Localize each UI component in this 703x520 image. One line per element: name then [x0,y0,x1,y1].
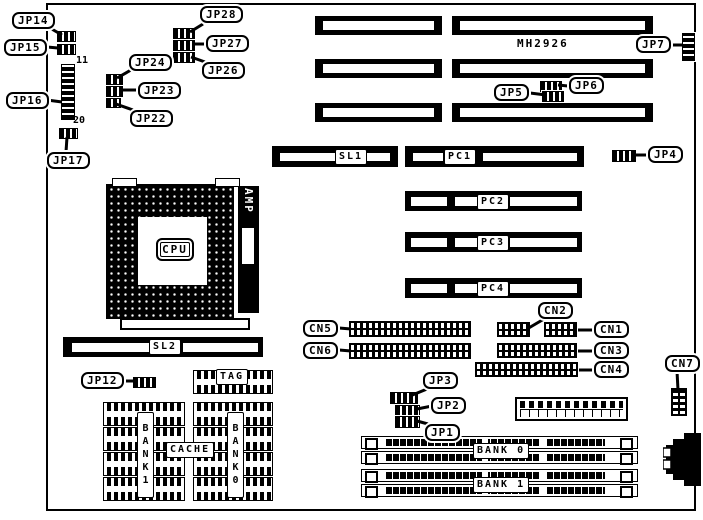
slot-keyway [460,108,645,117]
isa-slot [452,16,653,35]
slot-label-sl1: SL1 [335,149,367,165]
slot-keyway [72,343,150,352]
isa-slot [315,103,442,122]
slot-label-sl2: SL2 [149,339,181,355]
slot-keyway [483,153,577,161]
isa-slot [452,103,653,122]
simm-notch [540,472,546,479]
cache-bank1-label: BANK1 [137,412,154,498]
cpu-label: CPU [156,238,194,261]
slot-keyway [323,64,434,73]
label-cn1: CN1 [594,321,629,338]
header-cn6 [349,343,471,359]
slot-keyway [460,21,645,30]
slot-keyway [411,284,447,293]
header-cn1 [544,322,577,337]
slot-keyway [510,284,577,293]
header-cn7 [671,388,687,416]
jumper-jp1 [395,416,420,428]
slot-keyway [280,153,342,161]
jumper-jp23 [106,86,123,97]
simm-clip [365,438,378,450]
label-jp14: JP14 [12,12,55,29]
chipset-text: MH2926 [517,37,569,50]
slot-keyway [510,238,577,247]
label-jp15: JP15 [4,39,47,56]
slot-keyway [183,343,258,352]
memory-bank0-label: BANK 0 [473,443,529,459]
simm-clip [620,453,633,465]
slot-label-pc1: PC1 [444,149,476,165]
slot-keyway [413,153,443,161]
jumper-jp4 [612,150,636,162]
jumper-jp26 [173,52,195,63]
jumper-jp17 [59,128,78,139]
slot-label-pc4: PC4 [477,281,509,297]
jumper-jp14 [57,31,76,42]
power-connector [515,397,628,421]
jumper-jp24 [106,74,123,85]
label-jp3: JP3 [423,372,458,389]
header-cn3 [497,343,577,358]
simm-clip [620,471,633,483]
label-jp24: JP24 [129,54,172,71]
simm-clip [365,486,378,498]
label-jp23: JP23 [138,82,181,99]
slot-keyway [455,197,477,206]
pin-number-11: 11 [76,55,88,66]
simm-notch [540,487,546,494]
label-cn3: CN3 [594,342,629,359]
slot-keyway [411,238,447,247]
slot-keyway [323,108,434,117]
jumper-jp22 [106,98,121,108]
label-jp16: JP16 [6,92,49,109]
label-jp1: JP1 [425,424,460,441]
simm-clip [365,453,378,465]
socket-tab [215,178,240,187]
label-jp2: JP2 [431,397,466,414]
slot-keyway [323,21,434,30]
header-cn2 [497,322,530,337]
label-jp7: JP7 [636,36,671,53]
regulator-body [242,228,254,264]
cache-bank0-label: BANK0 [227,412,244,498]
simm-notch [540,439,546,446]
jumper-jp3 [390,392,418,404]
tag-label: TAG [216,369,248,385]
power-pins [520,401,623,408]
slot-pc1 [405,146,584,167]
simm-notch [540,454,546,461]
isa-slot [452,59,653,78]
header-jp16 [61,64,75,120]
header-cn5 [349,321,471,337]
slot-label-pc3: PC3 [477,235,509,251]
label-jp17: JP17 [47,152,90,169]
amp-label: AMP [242,188,255,214]
label-jp6: JP6 [569,77,604,94]
label-jp4: JP4 [648,146,683,163]
socket-lever [120,318,250,330]
power-terminals [520,409,623,417]
isa-slot [315,59,442,78]
simm-clip [365,471,378,483]
slot-label-pc2: PC2 [477,194,509,210]
label-cn6: CN6 [303,342,338,359]
jumper-jp5 [542,91,564,102]
header-cn4 [475,362,578,377]
motherboard-diagram: MH2926 SL1 PC1 JP4 PC2 PC3 PC4 JP14 JP15… [0,0,703,520]
slot-keyway [364,153,390,161]
jumper-jp28 [173,28,195,39]
slot-keyway [411,197,447,206]
label-cn4: CN4 [594,361,629,378]
amp-regulator: AMP [238,186,259,313]
slot-keyway [510,197,577,206]
isa-slot [315,16,442,35]
socket-tab [112,178,137,187]
slot-keyway [455,284,477,293]
simm-clip [620,438,633,450]
label-cn2: CN2 [538,302,573,319]
label-jp28: JP28 [200,6,243,23]
label-jp5: JP5 [494,84,529,101]
jumper-jp7 [682,33,695,61]
label-cn5: CN5 [303,320,338,337]
simm-clip [620,486,633,498]
label-jp27: JP27 [206,35,249,52]
jumper-jp12 [133,377,156,388]
cache-label: CACHE [166,442,214,458]
label-jp26: JP26 [202,62,245,79]
slot-keyway [460,64,645,73]
jumper-jp27 [173,40,195,51]
label-jp12: JP12 [81,372,124,389]
memory-bank1-label: BANK 1 [473,477,529,493]
label-jp22: JP22 [130,110,173,127]
label-cn7: CN7 [665,355,700,372]
keyboard-connector [663,430,701,488]
jumper-jp15 [57,44,76,55]
slot-keyway [455,238,477,247]
